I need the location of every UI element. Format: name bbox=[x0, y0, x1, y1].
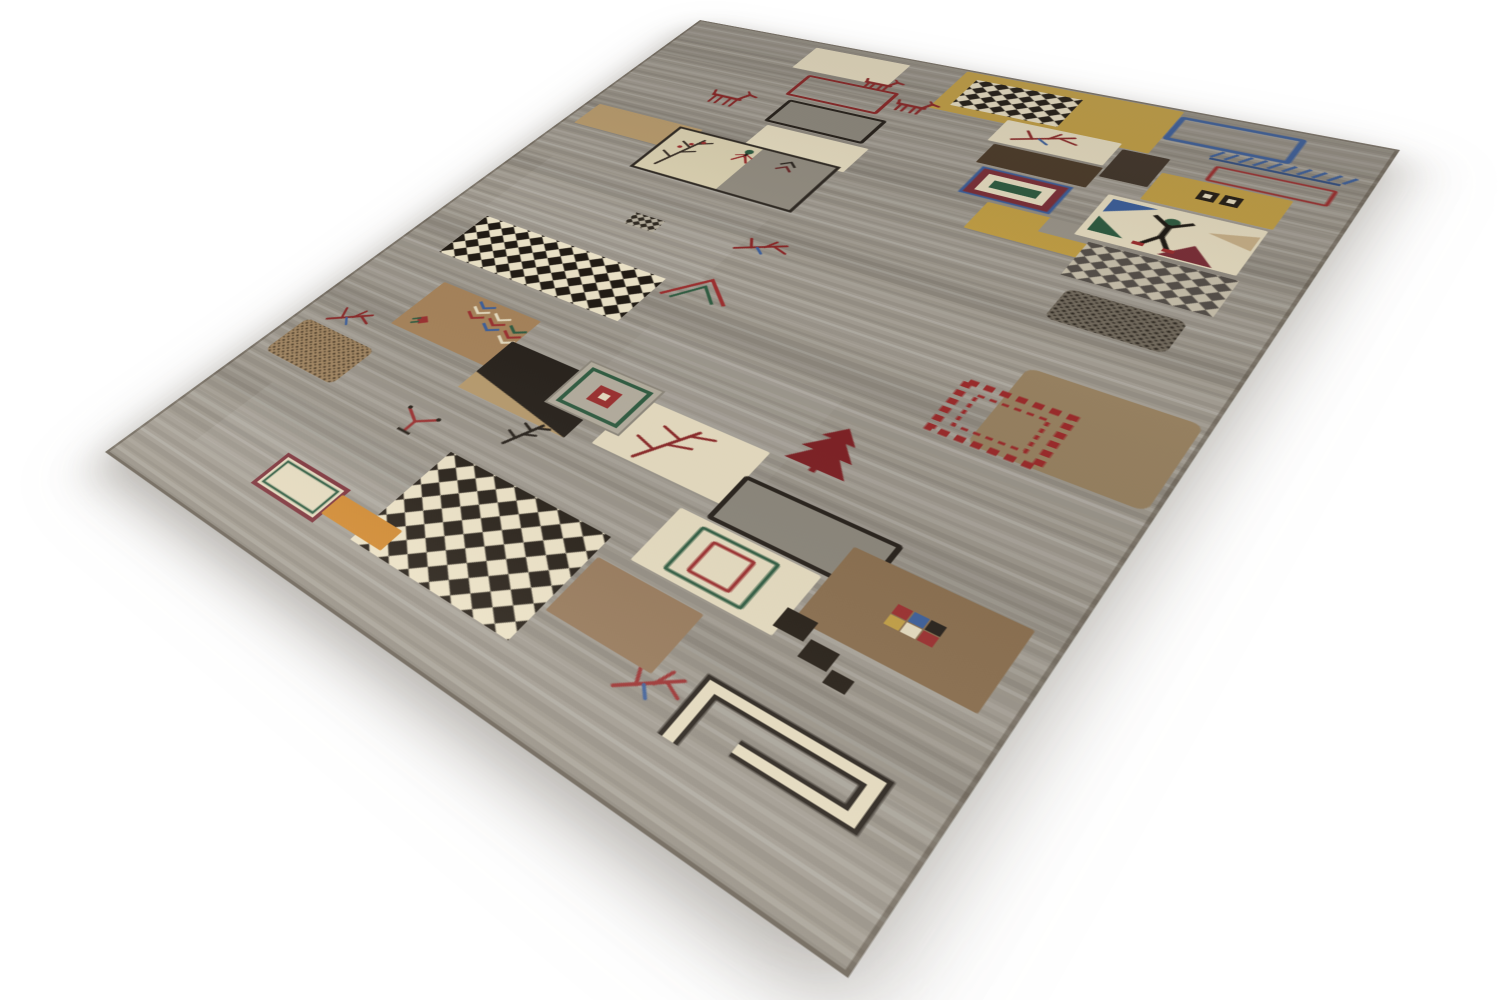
rug-flat-design bbox=[105, 20, 1400, 978]
photo-background bbox=[0, 0, 1500, 1000]
rug-photo bbox=[105, 20, 1400, 978]
light-tint-overlay bbox=[105, 20, 1400, 978]
